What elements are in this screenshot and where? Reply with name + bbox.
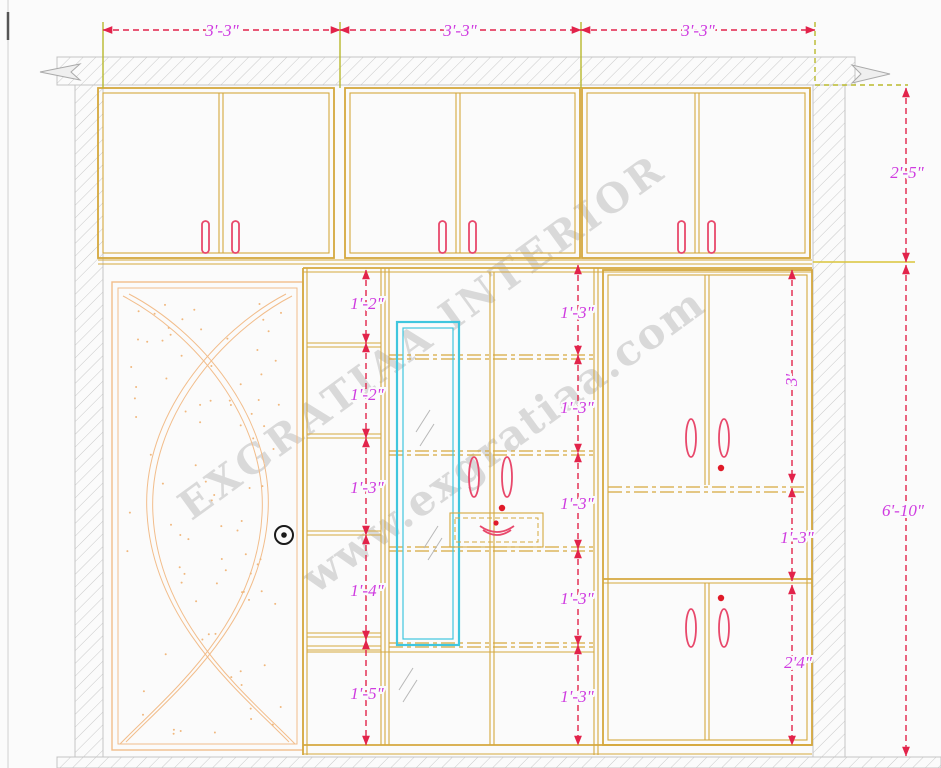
cabinet-handle [678, 221, 685, 253]
dimension-label: 1'-3" [560, 494, 594, 513]
cabinet-handle [232, 221, 239, 253]
cabinet-handle [439, 221, 446, 253]
cabinet-handle [686, 419, 696, 457]
cabinet-handle [719, 419, 729, 457]
dimension-label: 1'-5" [350, 684, 384, 703]
dimension-label: 6'-10" [882, 501, 925, 520]
dimension-label: 1'-2" [350, 385, 384, 404]
glass-mark [416, 410, 430, 432]
upper-cabinet-left [98, 88, 334, 258]
glass-mark [420, 424, 434, 446]
glass-mark [399, 668, 413, 690]
elevation-drawing: EXGRATIAA INTERIOR www.exgratiaa.com [0, 0, 941, 768]
dimension-label: 3' [782, 374, 801, 388]
glass-mark [403, 680, 417, 702]
cabinet-handle [719, 609, 729, 647]
red-dot [499, 505, 505, 511]
cabinet-handle [708, 221, 715, 253]
dimension-label: 1'-3" [560, 687, 594, 706]
watermark-url-text: www.exgratiaa.com [292, 278, 715, 604]
drawer [450, 505, 543, 547]
upper-cabinet-bottom-band [98, 260, 812, 264]
break-arrow-right-icon [852, 65, 890, 83]
dimension-label: 3'-3" [442, 21, 477, 40]
dimension-label: 1'-3" [350, 478, 384, 497]
glass-mark [428, 538, 442, 560]
dimension-label: 3'-3" [680, 21, 715, 40]
red-dot [718, 465, 724, 471]
glass-mark [424, 526, 438, 548]
red-dot [493, 520, 498, 525]
cabinet-handle [686, 609, 696, 647]
cabinet-handle [469, 221, 476, 253]
right-wall [813, 85, 845, 757]
dimension-label: 1'-4" [350, 581, 384, 600]
watermark: EXGRATIAA INTERIOR www.exgratiaa.com [170, 145, 715, 604]
dimension-label: 2'4" [784, 653, 813, 672]
dimension-label: 2'-5" [890, 163, 924, 182]
dimension-label: 1'-3" [780, 528, 814, 547]
dimension-label: 1'-3" [560, 398, 594, 417]
dimension-label: 1'-3" [560, 589, 594, 608]
dimension-label: 1'-2" [350, 294, 384, 313]
ceiling-beam [40, 57, 890, 85]
door-knob [275, 526, 293, 544]
plinth [303, 745, 812, 754]
dimension-label: 3'-3" [204, 21, 239, 40]
floor [57, 757, 941, 768]
red-dot [718, 595, 724, 601]
drawing-canvas: EXGRATIAA INTERIOR www.exgratiaa.com [0, 0, 941, 768]
cabinet-handle [202, 221, 209, 253]
dimension-label: 1'-3" [560, 303, 594, 322]
